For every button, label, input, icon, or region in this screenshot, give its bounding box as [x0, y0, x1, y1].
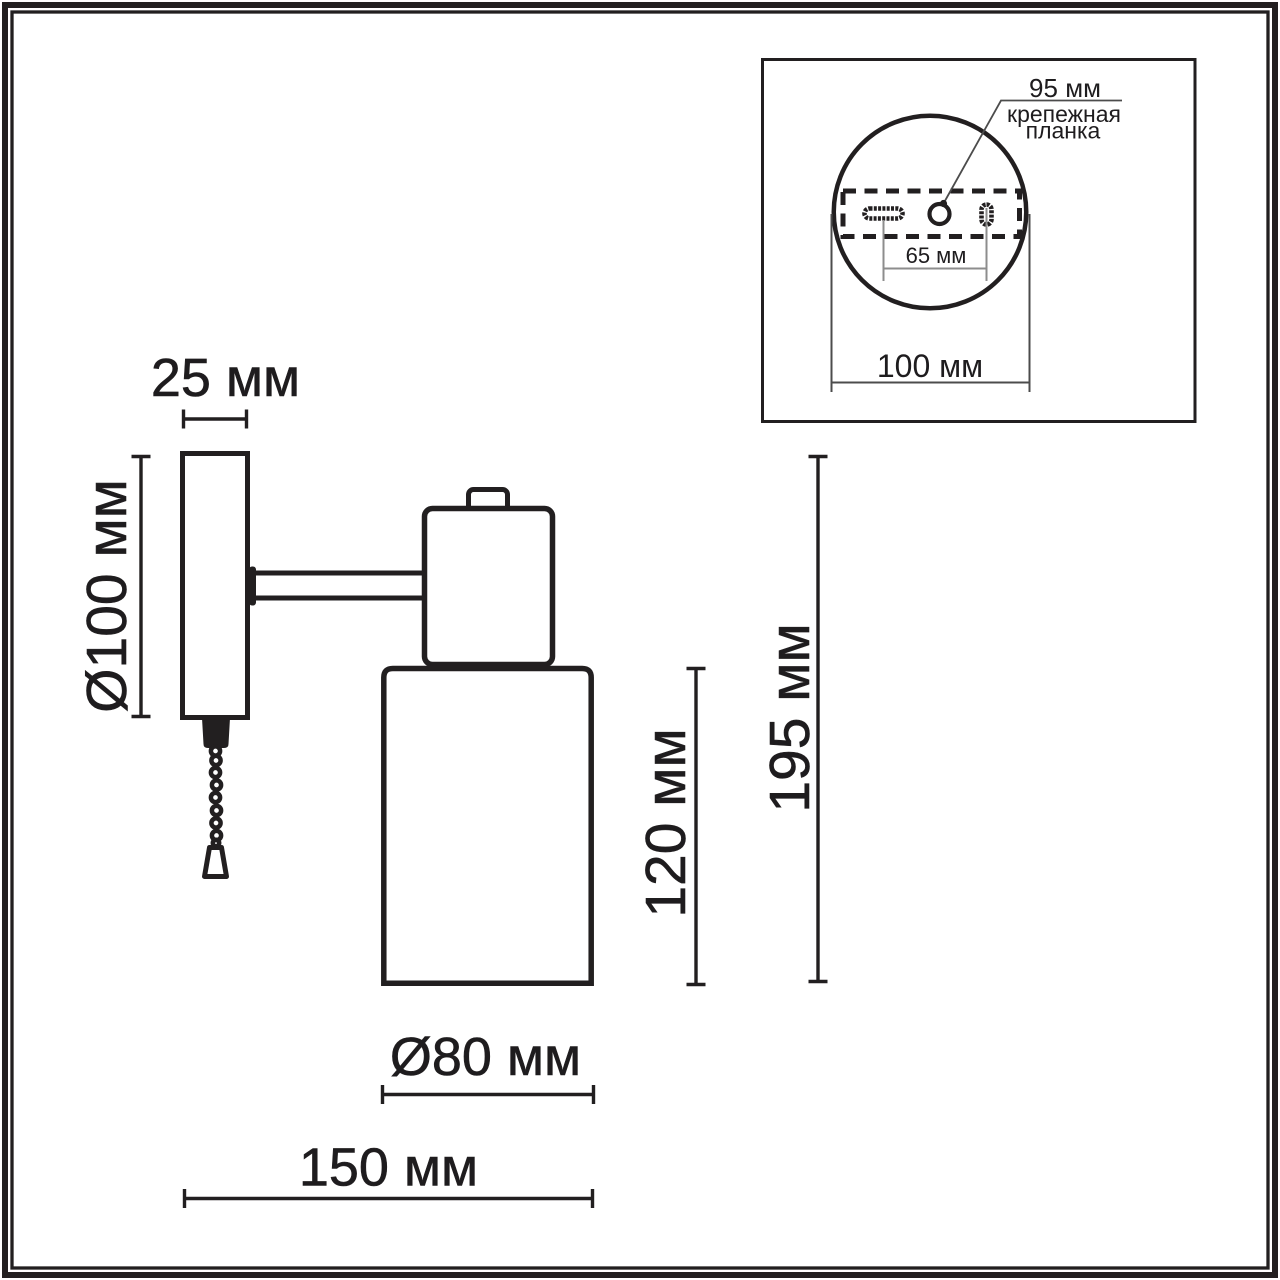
svg-text:150 мм: 150 мм — [299, 1138, 478, 1198]
svg-text:120 мм: 120 мм — [634, 728, 698, 917]
svg-text:65 мм: 65 мм — [906, 243, 967, 268]
svg-text:планка: планка — [1026, 118, 1101, 144]
svg-text:Ø80 мм: Ø80 мм — [390, 1027, 581, 1087]
svg-text:Ø100 мм: Ø100 мм — [75, 479, 139, 713]
svg-text:95 мм: 95 мм — [1029, 73, 1101, 103]
svg-text:100 мм: 100 мм — [877, 348, 983, 384]
svg-text:195 мм: 195 мм — [758, 623, 822, 812]
svg-text:25 мм: 25 мм — [151, 348, 300, 408]
